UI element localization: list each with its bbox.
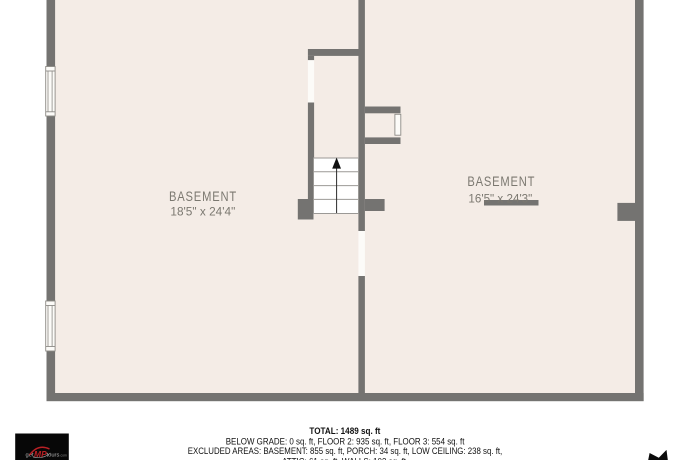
svg-text:ATTIC: 61 sq. ft, WALLS: 103 s: ATTIC: 61 sq. ft, WALLS: 103 sq. ft [282, 456, 406, 460]
svg-text:18'5" x 24'4": 18'5" x 24'4" [170, 206, 235, 219]
svg-text:.com: .com [60, 454, 68, 458]
svg-text:BASEMENT: BASEMENT [169, 189, 237, 204]
svg-text:get: get [26, 453, 34, 459]
svg-text:BASEMENT: BASEMENT [467, 174, 535, 189]
svg-text:tours: tours [47, 453, 60, 459]
svg-text:16'5" x 24'3": 16'5" x 24'3" [468, 193, 532, 206]
svg-text:TOTAL: 1489 sq. ft: TOTAL: 1489 sq. ft [309, 426, 381, 437]
